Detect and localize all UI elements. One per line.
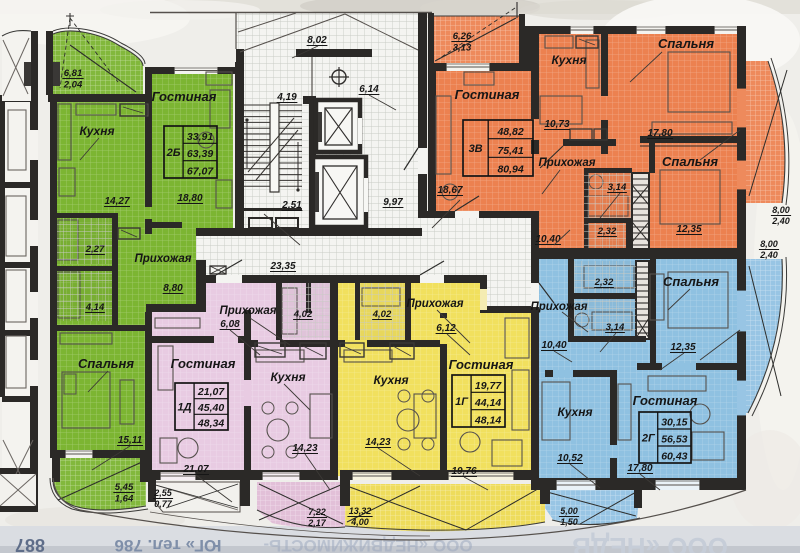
svg-text:3,14: 3,14 [606, 322, 625, 333]
svg-text:Гостиная: Гостиная [171, 356, 236, 371]
svg-text:ООО «НЕДВИЖИМОСТЬ-: ООО «НЕДВИЖИМОСТЬ- [263, 536, 472, 553]
svg-text:18,67: 18,67 [437, 185, 462, 196]
svg-text:8,00: 8,00 [760, 239, 778, 249]
svg-text:6,08: 6,08 [220, 319, 240, 330]
svg-text:48,82: 48,82 [496, 126, 523, 138]
svg-text:Кухня: Кухня [79, 124, 114, 138]
svg-text:14,23: 14,23 [292, 443, 317, 454]
svg-text:ЮГ» тел. 786: ЮГ» тел. 786 [114, 536, 221, 553]
svg-text:7,22: 7,22 [308, 507, 326, 517]
svg-text:2Г: 2Г [641, 433, 656, 445]
svg-text:19,77: 19,77 [475, 380, 502, 392]
svg-text:48,34: 48,34 [197, 418, 224, 430]
svg-text:4,02: 4,02 [293, 309, 313, 320]
svg-text:1,64: 1,64 [115, 494, 134, 505]
svg-text:2,04: 2,04 [63, 80, 83, 91]
svg-text:5,45: 5,45 [115, 482, 134, 493]
svg-text:17,80: 17,80 [647, 128, 672, 139]
svg-text:1Д: 1Д [178, 402, 192, 414]
svg-text:Гостиная: Гостиная [633, 393, 698, 408]
svg-text:ООО «НЕДВ: ООО «НЕДВ [572, 532, 728, 553]
svg-text:48,14: 48,14 [474, 415, 501, 427]
svg-text:6,12: 6,12 [436, 323, 456, 334]
svg-text:Кухня: Кухня [557, 405, 592, 419]
svg-text:2,32: 2,32 [594, 277, 614, 288]
svg-text:6,81: 6,81 [64, 68, 83, 79]
svg-text:13,32: 13,32 [349, 506, 372, 516]
svg-text:18,80: 18,80 [177, 193, 202, 204]
svg-text:Спальня: Спальня [663, 274, 719, 289]
svg-text:4,02: 4,02 [372, 309, 392, 320]
svg-text:56,53: 56,53 [661, 434, 687, 446]
svg-text:8,80: 8,80 [163, 283, 183, 294]
svg-text:44,14: 44,14 [474, 397, 501, 409]
svg-text:1,50: 1,50 [560, 517, 578, 527]
svg-text:2,17: 2,17 [307, 518, 327, 528]
svg-text:2,32: 2,32 [597, 226, 617, 237]
svg-text:2Б: 2Б [166, 147, 181, 159]
svg-text:10,40: 10,40 [541, 340, 566, 351]
svg-text:Гостиная: Гостиная [152, 89, 217, 104]
svg-text:9,97: 9,97 [383, 197, 403, 208]
svg-text:Спальня: Спальня [658, 36, 714, 51]
svg-text:Прихожая: Прихожая [406, 298, 463, 310]
svg-text:2,27: 2,27 [85, 244, 105, 255]
svg-text:Кухня: Кухня [270, 370, 305, 384]
svg-text:2,40: 2,40 [759, 250, 778, 260]
svg-text:8,00: 8,00 [772, 205, 790, 215]
svg-text:6,14: 6,14 [359, 84, 379, 95]
svg-text:21,07: 21,07 [182, 464, 208, 475]
svg-text:19,76: 19,76 [451, 466, 476, 477]
svg-text:30,15: 30,15 [661, 417, 687, 429]
svg-text:15,11: 15,11 [118, 435, 143, 446]
svg-text:Прихожая: Прихожая [134, 253, 191, 265]
svg-text:4,14: 4,14 [85, 302, 105, 313]
svg-text:67,07: 67,07 [187, 166, 214, 178]
svg-text:Гостиная: Гостиная [449, 357, 514, 372]
svg-text:3,13: 3,13 [453, 43, 472, 54]
svg-text:1Г: 1Г [455, 396, 469, 408]
svg-text:10,52: 10,52 [557, 453, 582, 464]
svg-text:10,73: 10,73 [544, 119, 569, 130]
svg-text:Спальня: Спальня [662, 154, 718, 169]
svg-text:Прихожая: Прихожая [538, 157, 595, 169]
svg-text:45,40: 45,40 [197, 402, 224, 414]
svg-text:887: 887 [15, 535, 45, 553]
svg-text:80,94: 80,94 [497, 164, 523, 176]
svg-text:14,23: 14,23 [365, 437, 390, 448]
svg-text:5,00: 5,00 [560, 506, 578, 516]
svg-text:12,35: 12,35 [676, 224, 701, 235]
svg-text:10,40: 10,40 [535, 234, 560, 245]
svg-text:17,80: 17,80 [627, 463, 652, 474]
svg-text:60,43: 60,43 [661, 451, 687, 463]
svg-text:63,39: 63,39 [187, 148, 213, 160]
svg-text:6,26: 6,26 [453, 31, 472, 42]
svg-text:Кухня: Кухня [373, 373, 408, 387]
svg-text:Спальня: Спальня [78, 356, 134, 371]
svg-text:2,40: 2,40 [771, 216, 790, 226]
svg-text:0,77: 0,77 [154, 499, 173, 509]
svg-text:21,07: 21,07 [197, 386, 225, 398]
svg-text:Гостиная: Гостиная [455, 87, 520, 102]
svg-text:Прихожая: Прихожая [530, 301, 587, 313]
svg-text:75,41: 75,41 [497, 145, 523, 157]
svg-text:23,35: 23,35 [269, 261, 295, 272]
svg-text:2,55: 2,55 [153, 488, 173, 498]
svg-text:Прихожая: Прихожая [219, 305, 276, 317]
svg-text:14,27: 14,27 [104, 196, 129, 207]
svg-text:4,19: 4,19 [276, 92, 297, 103]
svg-text:3В: 3В [469, 143, 483, 155]
svg-text:2,51: 2,51 [281, 200, 302, 211]
svg-text:3,14: 3,14 [608, 182, 627, 193]
svg-text:4,00: 4,00 [350, 517, 369, 527]
svg-text:12,35: 12,35 [670, 342, 695, 353]
svg-text:8,02: 8,02 [307, 35, 327, 46]
svg-text:33,91: 33,91 [187, 131, 213, 143]
svg-text:Кухня: Кухня [551, 53, 586, 67]
